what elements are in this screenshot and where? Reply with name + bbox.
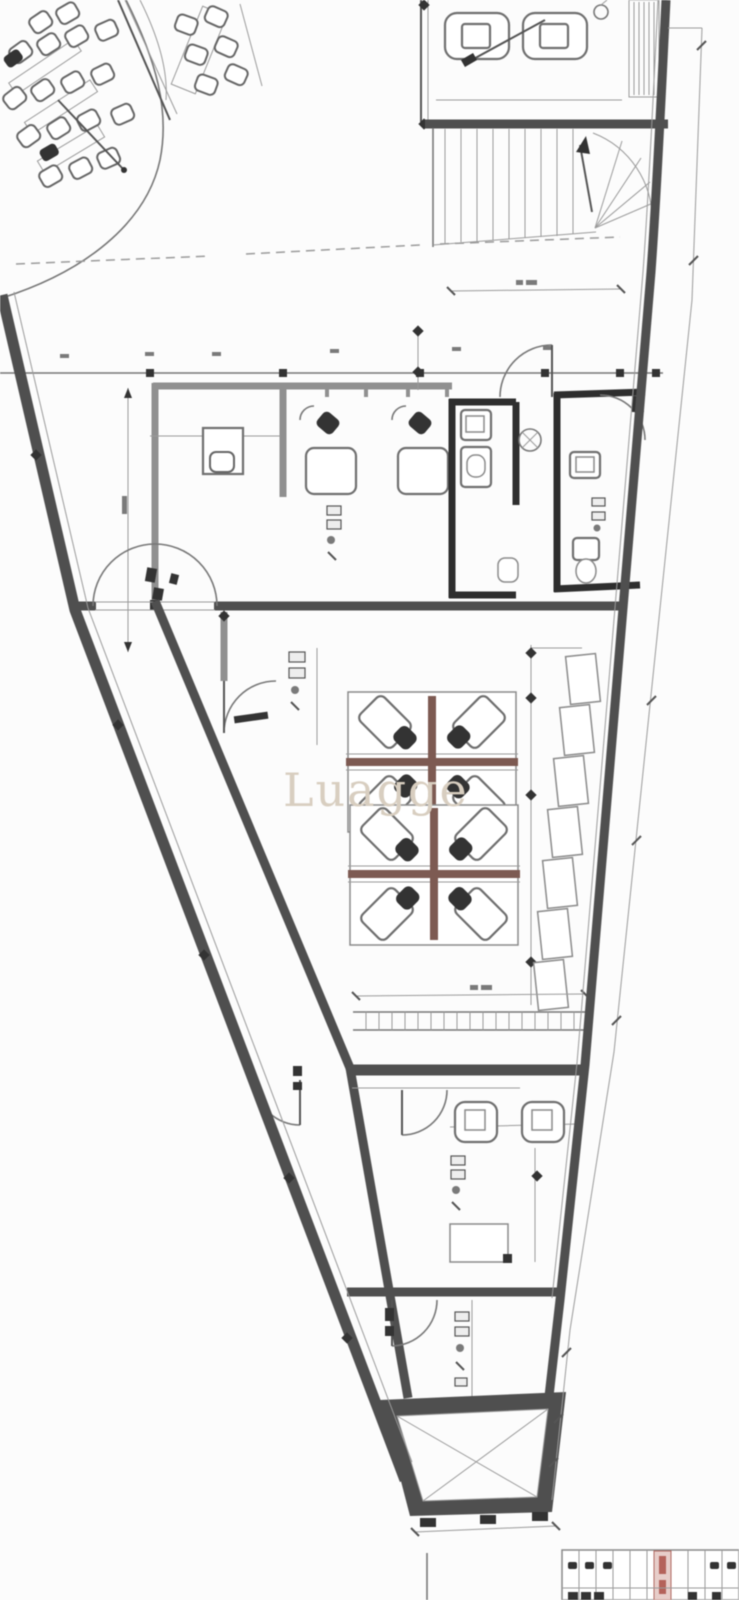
top-right-office [418,0,668,130]
shaft-base-marks [411,1512,560,1536]
side-chair-group [171,4,262,96]
wc-fixtures [461,410,518,582]
radiator-hatch [629,0,659,97]
elevator-shaft [380,1392,566,1536]
room-label-smudge [455,1312,469,1386]
drain-symbol [519,429,541,451]
desk-unit [522,1102,564,1142]
vertical-dimension-line [122,388,132,652]
desk-unit [455,1102,497,1142]
vestibule-door [218,610,276,733]
single-desk [150,428,280,474]
workstation-cluster-2 [348,805,520,945]
sheet-fragment-table [427,1550,739,1600]
washbasin [570,452,600,478]
dashed-section-line [16,237,620,264]
room-label-smudge [289,652,305,710]
watermark-text: Luagge [283,763,469,817]
room-label-smudge [327,506,341,560]
floor-plan-canvas: Luagge [0,0,739,1600]
workstation-pair [392,406,448,494]
desk-unit [445,13,509,59]
room-label-smudge [451,1156,465,1210]
upper-dimension-line [447,280,625,295]
dimension-smudges [60,346,552,358]
room-label-smudge [592,498,605,532]
desk-unit [523,13,587,59]
winder-treads [593,133,653,228]
toilet [573,538,599,583]
staircase [433,128,653,247]
workstation-pair [300,406,356,494]
floor-plan-sheet: Luagge [0,0,739,1600]
open-office [70,544,624,1398]
restrooms [449,345,645,598]
